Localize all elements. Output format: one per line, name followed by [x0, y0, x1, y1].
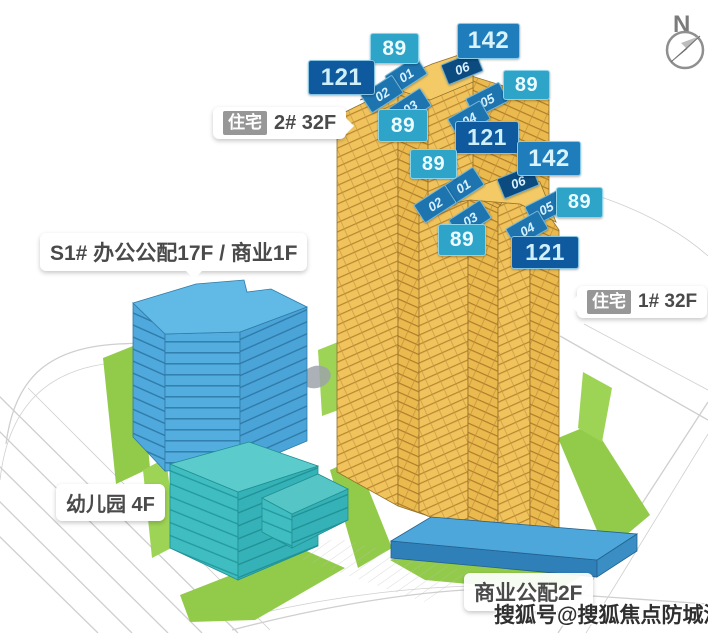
- callout-residential-1: 住宅 1# 32F: [577, 286, 707, 318]
- unit-area-badge: 89: [503, 70, 550, 100]
- unit-area-badge: 89: [438, 224, 486, 256]
- unit-area-badge: 121: [511, 236, 579, 269]
- unit-area-badge: 89: [410, 149, 457, 179]
- office-building-s1: [133, 280, 307, 471]
- watermark-text: 搜狐号@搜狐焦点防城港站: [494, 599, 708, 629]
- callout-text: S1# 办公公配17F / 商业1F: [50, 237, 297, 267]
- north-compass: N: [667, 11, 703, 68]
- callout-kindergarten: 幼儿园 4F: [56, 484, 165, 521]
- callout-residential-2: 住宅 2# 32F: [213, 107, 346, 139]
- residential-tag: 住宅: [223, 111, 267, 135]
- site-plan-rendering: N 01 02 03 06 05 04 01 02 03 06 05 04 89…: [0, 0, 708, 633]
- callout-pointer: [345, 117, 363, 135]
- compass-needle-axis: [671, 36, 700, 62]
- callout-office: S1# 办公公配17F / 商业1F: [40, 233, 307, 271]
- unit-area-badge: 142: [517, 141, 581, 176]
- callout-text: 2# 32F: [274, 112, 336, 135]
- unit-area-badge: 89: [556, 187, 603, 218]
- unit-area-badge: 121: [455, 121, 519, 154]
- callout-text: 1# 32F: [638, 291, 697, 313]
- unit-area-badge: 89: [378, 109, 428, 142]
- unit-area-badge: 142: [457, 23, 520, 59]
- callout-pointer: [560, 295, 578, 313]
- unit-area-badge: 121: [308, 60, 375, 95]
- unit-area-badge: 89: [370, 33, 419, 64]
- residential-tag: 住宅: [587, 290, 631, 314]
- callout-pointer: [185, 270, 203, 288]
- callout-text: 幼儿园 4F: [66, 488, 155, 517]
